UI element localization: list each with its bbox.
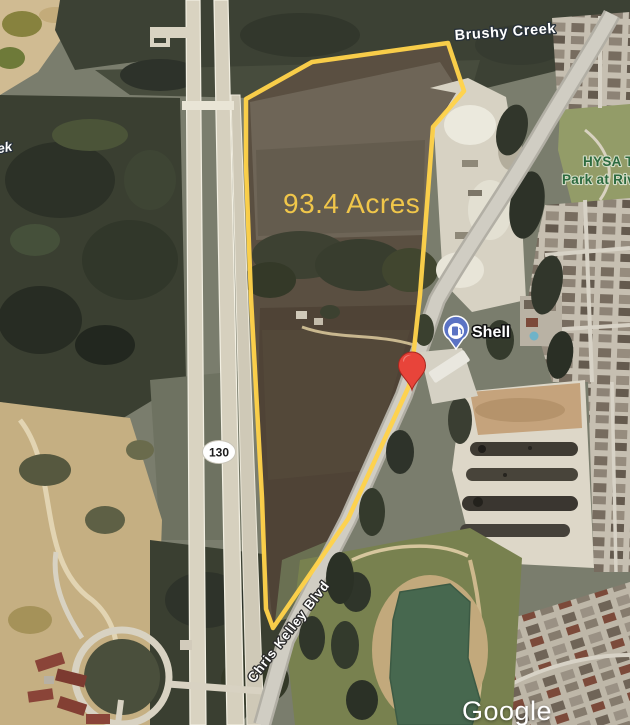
highway-130-shield: 130: [203, 441, 236, 464]
map-image: Brushy Creek ek 93.4 Acres HYSA T Park a…: [0, 0, 630, 725]
park-label-line2: Park at Riv: [562, 172, 630, 187]
satellite-map[interactable]: Brushy Creek ek 93.4 Acres HYSA T Park a…: [0, 0, 630, 725]
acreage-label: 93.4 Acres: [283, 188, 420, 219]
highway-shield-label: 130: [209, 446, 229, 460]
park-label-line1: HYSA T: [583, 154, 630, 169]
shell-label: Shell: [472, 324, 510, 341]
google-watermark[interactable]: Google: [462, 696, 552, 725]
